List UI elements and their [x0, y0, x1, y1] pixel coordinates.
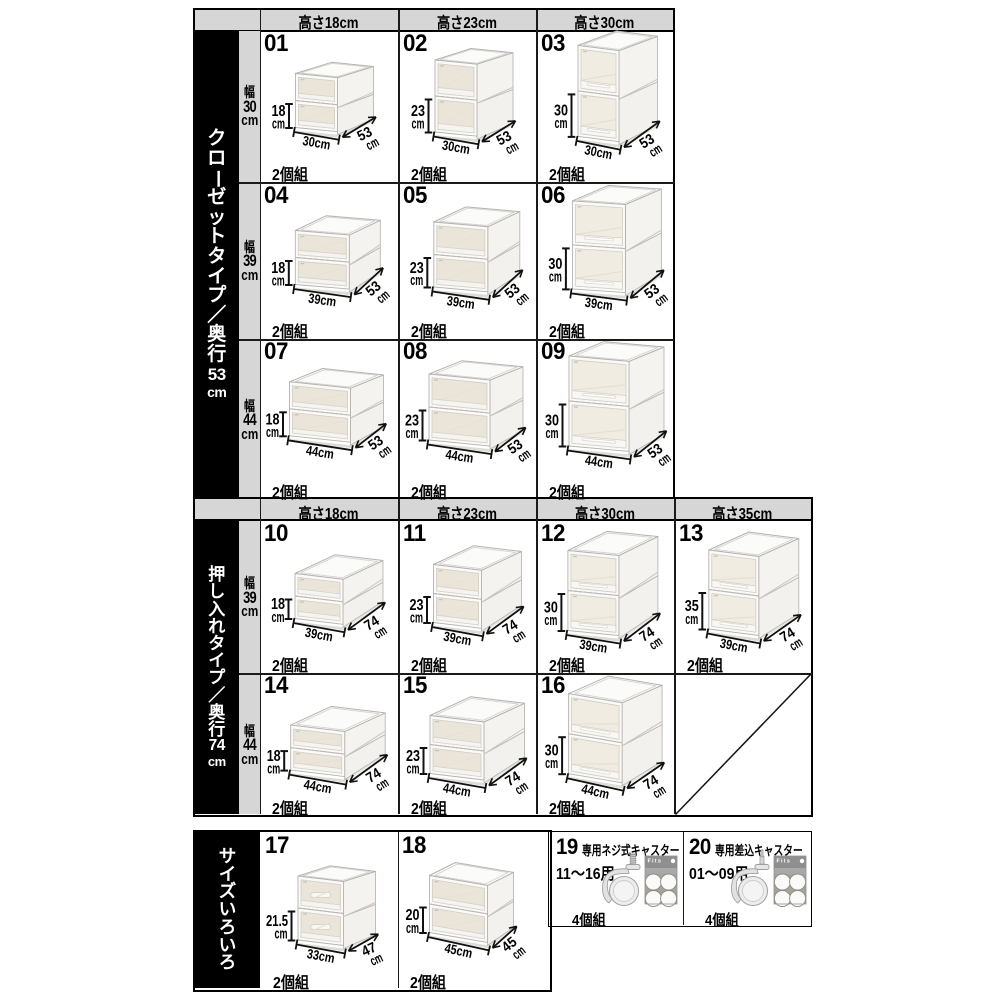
svg-text:Fits: Fits [777, 859, 792, 865]
svg-text:Fits: Fits [648, 859, 663, 865]
svg-text:cm: cm [272, 274, 285, 290]
svg-text:44cm: 44cm [305, 443, 335, 462]
svg-text:cm: cm [410, 611, 423, 627]
svg-text:44cm: 44cm [445, 447, 475, 466]
svg-text:cm: cm [544, 613, 557, 629]
svg-text:cm: cm [275, 927, 288, 943]
svg-text:cm: cm [412, 117, 425, 133]
svg-text:cm: cm [549, 269, 562, 285]
svg-text:cm: cm [267, 761, 280, 777]
svg-text:cm: cm [546, 426, 559, 442]
svg-text:cm: cm [272, 117, 285, 133]
svg-text:39cm: 39cm [584, 295, 614, 313]
svg-text:cm: cm [407, 762, 420, 778]
svg-text:cm: cm [406, 921, 419, 937]
svg-text:39cm: 39cm [578, 637, 608, 656]
svg-text:cm: cm [406, 426, 419, 442]
svg-text:cm: cm [410, 273, 423, 289]
svg-text:cm: cm [685, 612, 698, 628]
svg-text:cm: cm [555, 116, 568, 132]
svg-text:39cm: 39cm [307, 291, 337, 310]
svg-text:44cm: 44cm [584, 453, 614, 472]
svg-text:cm: cm [545, 756, 558, 772]
svg-text:39cm: 39cm [446, 293, 476, 312]
svg-text:cm: cm [266, 425, 279, 441]
svg-text:cm: cm [272, 610, 285, 626]
